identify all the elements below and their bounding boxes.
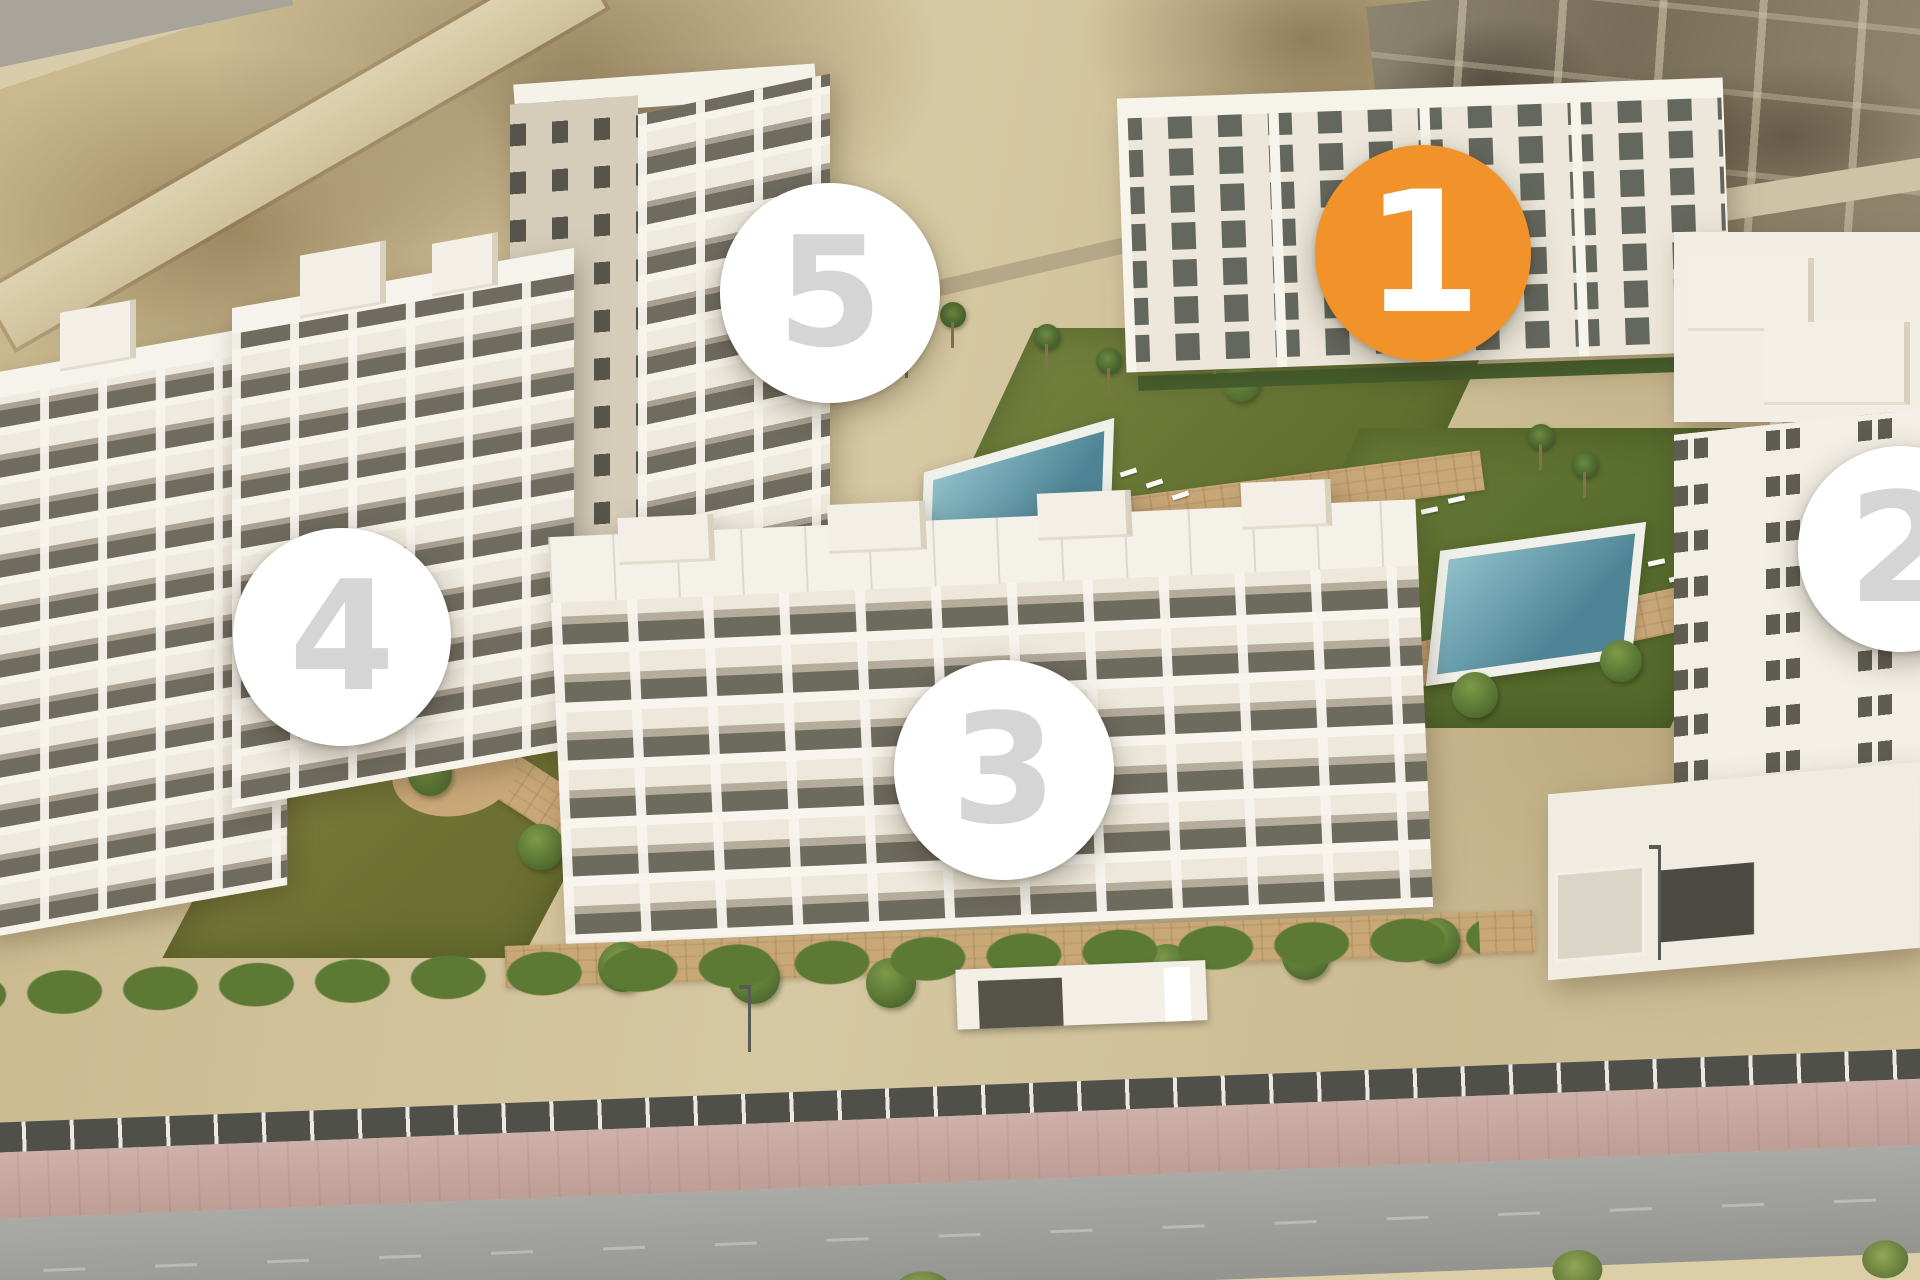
penthouse-roofbox — [827, 501, 927, 554]
penthouse-roofbox — [617, 514, 715, 565]
building-1-marker[interactable]: 1 — [1315, 145, 1531, 361]
palm-tree — [940, 302, 966, 328]
penthouse-roofbox — [1688, 258, 1814, 331]
building-4-marker-label: 4 — [289, 561, 395, 713]
penthouse-roofbox — [1240, 479, 1332, 530]
building-1-marker-label: 1 — [1365, 169, 1482, 337]
building-3-marker[interactable]: 3 — [894, 660, 1114, 880]
garden-tree — [1452, 672, 1498, 718]
palm-tree — [1572, 452, 1598, 478]
building-5-marker-label: 5 — [777, 217, 883, 369]
gate-door — [978, 978, 1064, 1029]
building-4-marker[interactable]: 4 — [233, 528, 451, 746]
palm-tree — [1528, 424, 1554, 450]
building-3-marker-label: 3 — [951, 694, 1057, 846]
roadside-strip — [0, 917, 1920, 1280]
garden-tree — [1600, 640, 1642, 682]
development-site-plan-render: 1 2 3 4 5 — [0, 0, 1920, 1280]
building-2-marker-label: 2 — [1848, 473, 1920, 625]
palm-tree — [1034, 324, 1060, 350]
gate-pillar — [1163, 967, 1191, 1022]
penthouse-roofbox — [1764, 322, 1910, 405]
penthouse-roofbox — [1037, 490, 1133, 541]
palm-tree — [1096, 348, 1122, 374]
street-lamp — [748, 988, 751, 1052]
roadside-bush — [1862, 1239, 1909, 1279]
entrance-gate — [955, 960, 1207, 1030]
garden-tree — [518, 824, 564, 870]
street-lamp — [1658, 848, 1661, 960]
building-5-marker[interactable]: 5 — [720, 183, 940, 403]
